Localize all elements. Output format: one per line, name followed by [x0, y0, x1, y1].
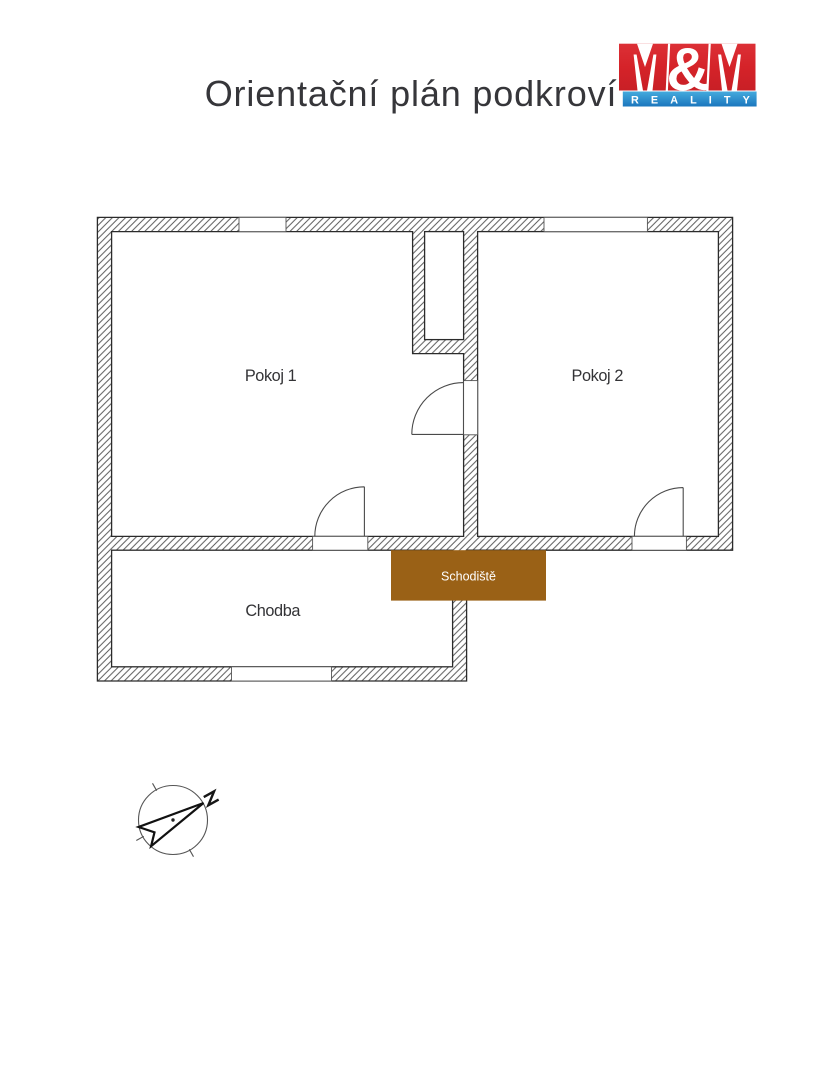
svg-text:Pokoj 1: Pokoj 1 [245, 367, 297, 385]
svg-text:Orientační plán podkroví: Orientační plán podkroví [205, 73, 618, 114]
svg-text:Chodba: Chodba [245, 602, 301, 620]
svg-text:Pokoj 2: Pokoj 2 [572, 367, 624, 385]
svg-text:Schodiště: Schodiště [441, 570, 496, 584]
svg-text:REALITY: REALITY [631, 95, 762, 107]
